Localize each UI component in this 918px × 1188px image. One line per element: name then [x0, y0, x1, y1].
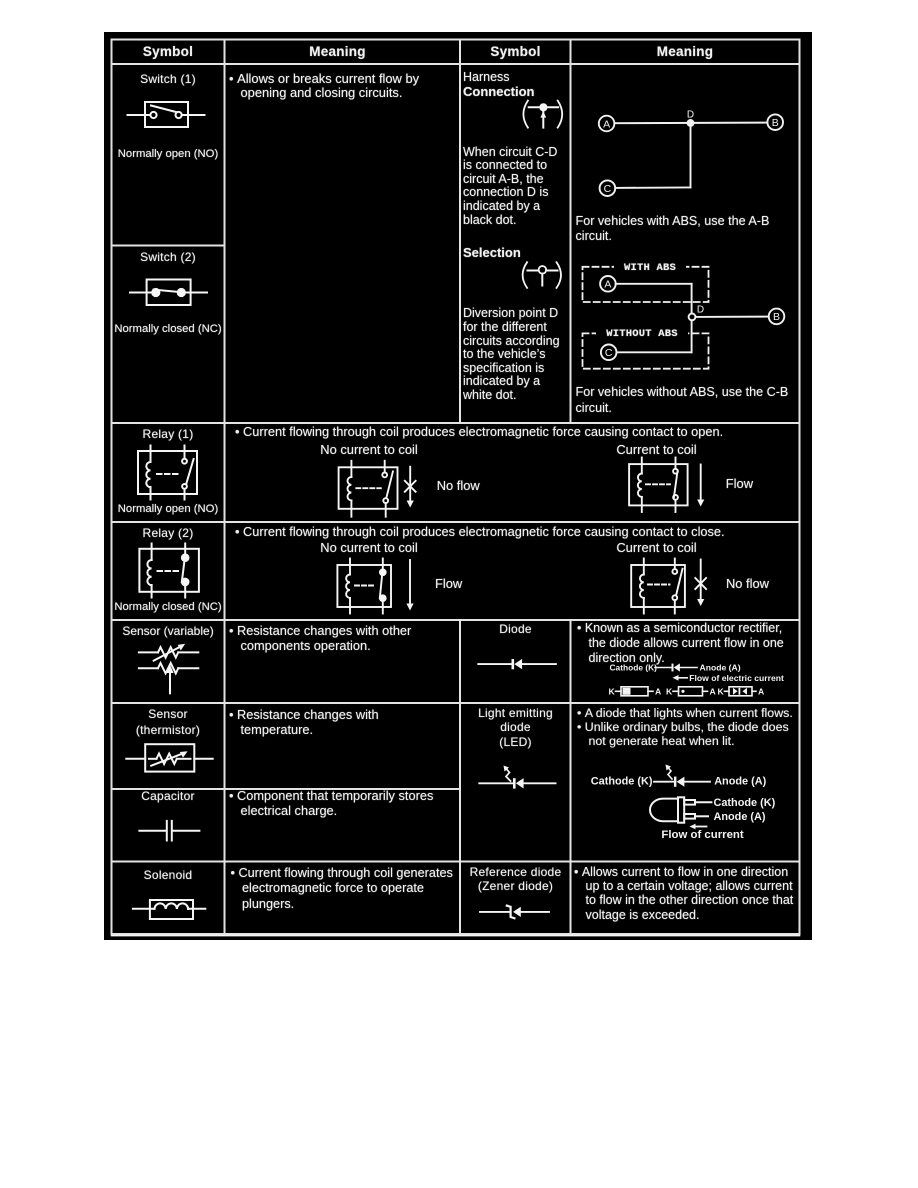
svg-text:K: K	[609, 687, 616, 697]
svg-text:C: C	[605, 347, 613, 359]
svg-text:C: C	[604, 183, 612, 195]
svg-text:A: A	[710, 687, 716, 697]
svg-text:Flow of electric current: Flow of electric current	[689, 673, 784, 683]
svg-text:D: D	[697, 305, 704, 316]
svg-text:Cathode (K): Cathode (K)	[714, 797, 776, 809]
svg-text:K: K	[666, 687, 673, 697]
svg-text:D: D	[687, 110, 694, 121]
svg-text:Cathode (K): Cathode (K)	[591, 775, 653, 787]
svg-text:A: A	[655, 687, 661, 697]
svg-text:A: A	[603, 118, 610, 130]
svg-text:Anode (A): Anode (A)	[714, 775, 766, 787]
svg-text:Flow of current: Flow of current	[661, 829, 743, 841]
svg-text:A: A	[758, 687, 764, 697]
svg-text:A: A	[604, 279, 611, 291]
svg-text:B: B	[772, 117, 779, 129]
svg-text:Anode (A): Anode (A)	[714, 811, 766, 823]
svg-text:B: B	[773, 311, 780, 323]
svg-text:K: K	[718, 687, 725, 697]
